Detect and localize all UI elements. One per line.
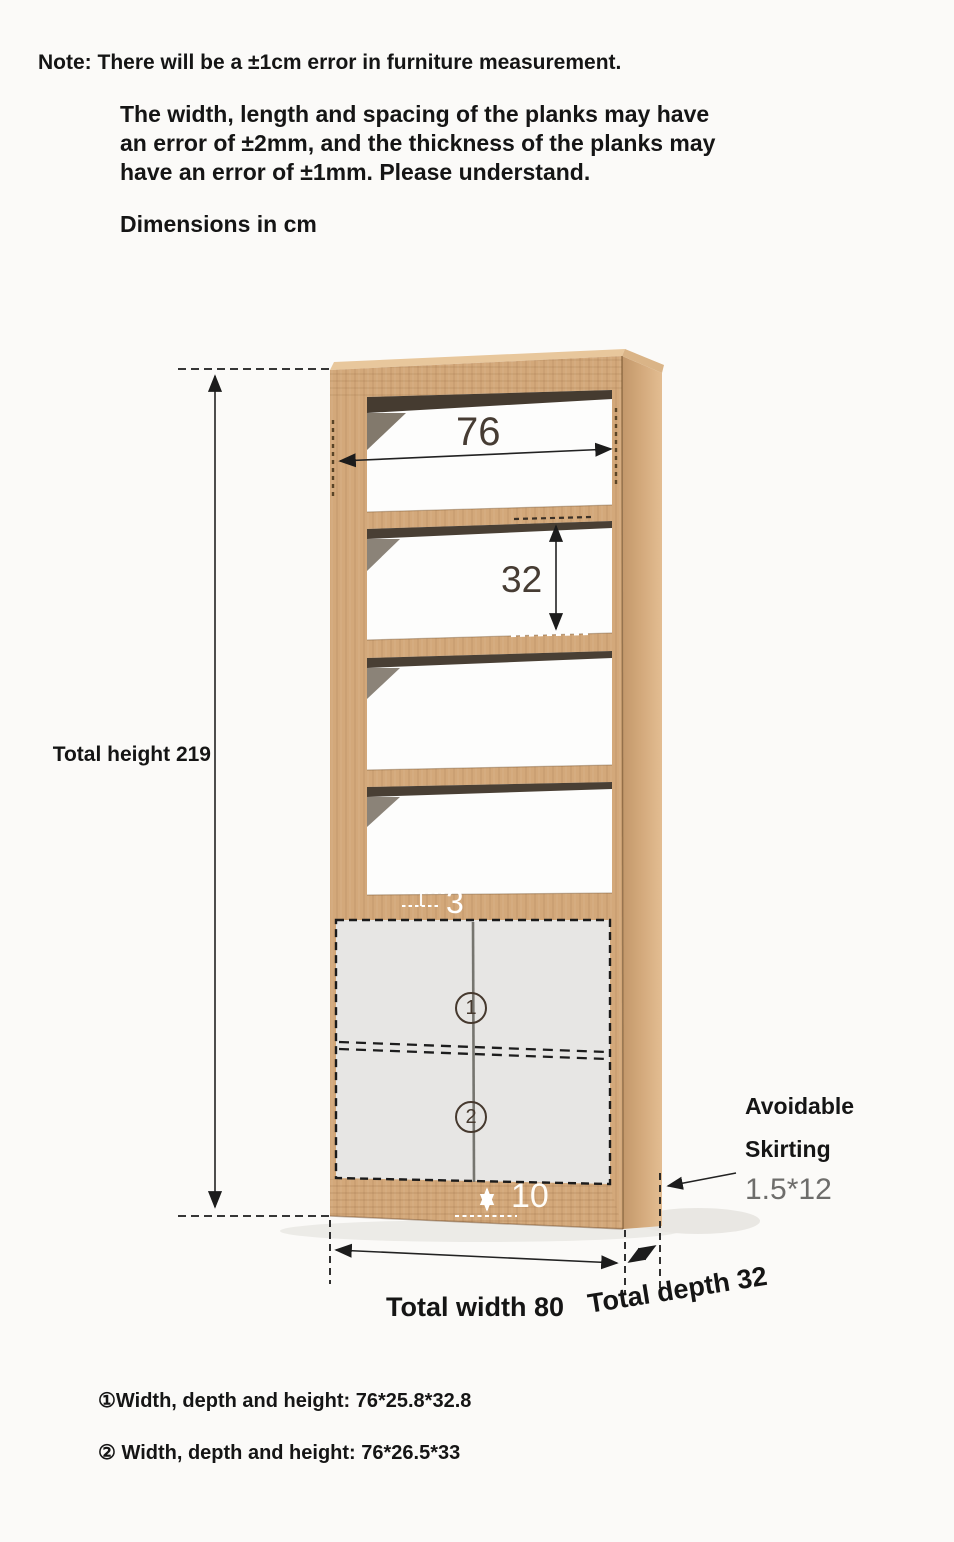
units-label: Dimensions in cm (120, 212, 317, 236)
skirting-arrow (668, 1173, 736, 1186)
footnote-compartment-1: ①Width, depth and height: 76*25.8*32.8 (98, 1391, 471, 1412)
plinth-height-value: 10 (511, 1179, 549, 1215)
opening-3 (367, 651, 612, 770)
total-width-label: Total width 80 (386, 1293, 564, 1321)
width80-arrow (336, 1250, 617, 1263)
plinth (330, 1179, 623, 1229)
tolerance-line-3: have an error of ±1mm. Please understand… (120, 158, 715, 187)
cabinet-doors (336, 920, 610, 1184)
opening-4 (367, 782, 612, 895)
inner-width-value: 76 (456, 411, 501, 453)
tolerance-paragraph: The width, length and spacing of the pla… (120, 100, 715, 187)
footnote-compartment-2: ② Width, depth and height: 76*26.5*33 (98, 1443, 460, 1464)
compartment-1-number: 1 (465, 997, 476, 1020)
shelf-spacing-value: 32 (501, 561, 542, 600)
compartment-2-badge: 2 (455, 1101, 487, 1133)
skirting-label-line2: Skirting (745, 1137, 831, 1161)
furniture-dimension-diagram: Note: There will be a ±1cm error in furn… (0, 0, 954, 1542)
front-side-fold (622, 356, 623, 1229)
skirting-size: 1.5*12 (745, 1174, 832, 1206)
tolerance-line-2: an error of ±2mm, and the thickness of t… (120, 129, 715, 158)
opening-2 (367, 521, 612, 640)
total-height-label: Total height 219 (0, 744, 211, 766)
side-panel (622, 356, 662, 1229)
tolerance-line-1: The width, length and spacing of the pla… (120, 100, 715, 129)
compartment-1-badge: 1 (455, 992, 487, 1024)
compartment-2-number: 2 (465, 1106, 476, 1129)
measurement-note: Note: There will be a ±1cm error in furn… (38, 52, 621, 74)
depth32-arrow (629, 1246, 655, 1262)
cabinet-body (330, 349, 664, 1229)
door-divider (473, 922, 474, 1182)
shelf-thickness-value: 3 (446, 886, 464, 920)
skirting-label-line1: Avoidable (745, 1094, 854, 1118)
